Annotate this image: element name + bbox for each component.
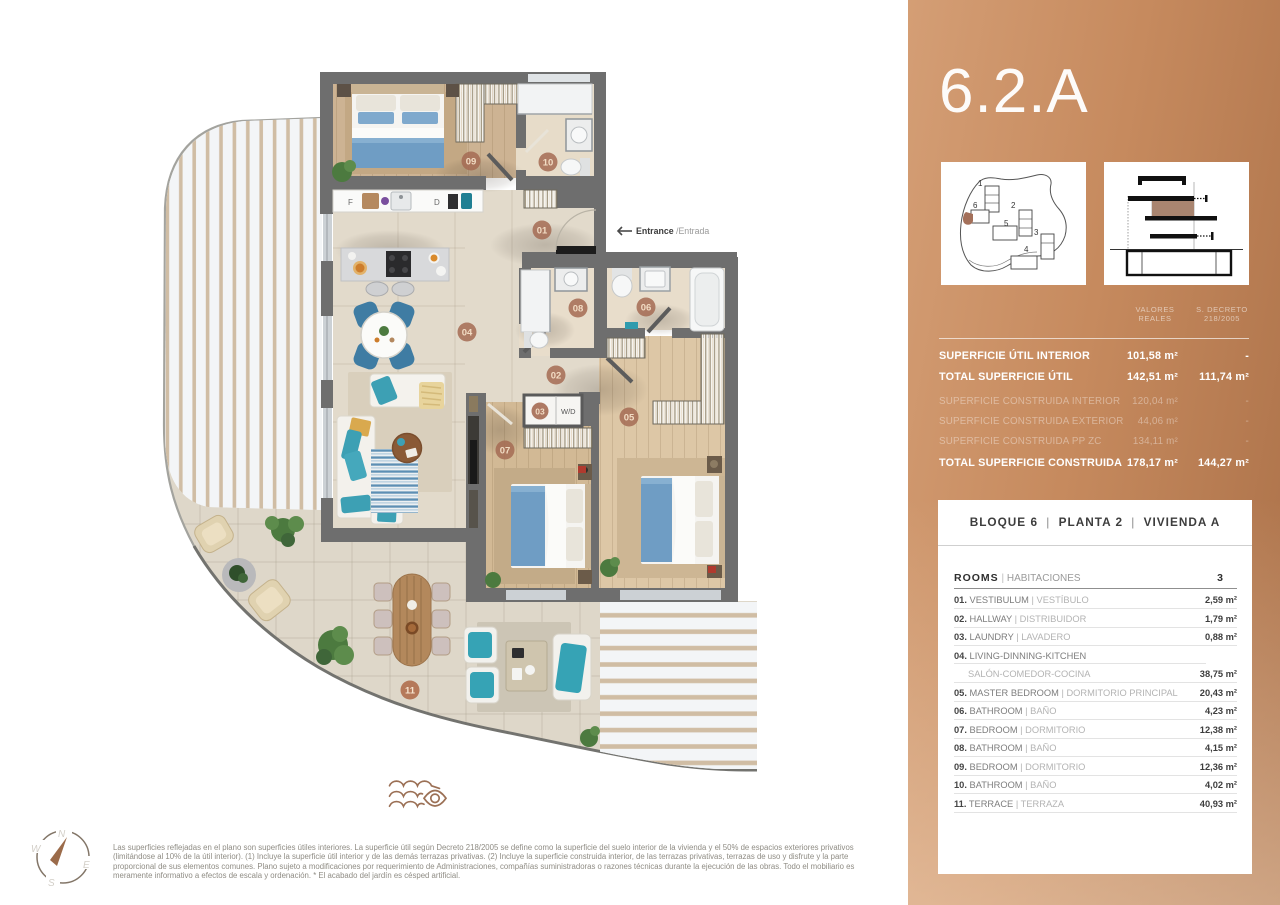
svg-text:08: 08 xyxy=(573,304,584,315)
svg-text:07: 07 xyxy=(500,446,511,457)
svg-text:10: 10 xyxy=(543,158,554,169)
svg-text:02: 02 xyxy=(551,371,562,382)
svg-text:D: D xyxy=(434,198,440,207)
svg-text:5: 5 xyxy=(1004,219,1009,228)
svg-text:W/D: W/D xyxy=(561,407,576,416)
svg-text:/Entrada: /Entrada xyxy=(676,226,709,236)
svg-text:4: 4 xyxy=(1024,245,1029,254)
svg-text:3: 3 xyxy=(1034,228,1039,237)
svg-text:01: 01 xyxy=(537,226,548,237)
svg-text:04: 04 xyxy=(462,328,473,339)
svg-text:6: 6 xyxy=(973,201,978,210)
svg-text:2: 2 xyxy=(1011,201,1016,210)
svg-text:F: F xyxy=(348,198,353,207)
svg-text:E: E xyxy=(83,860,90,871)
svg-text:N: N xyxy=(58,829,66,840)
svg-text:06: 06 xyxy=(641,303,652,314)
svg-text:03: 03 xyxy=(535,407,545,417)
svg-text:05: 05 xyxy=(624,413,635,424)
svg-text:1: 1 xyxy=(978,179,983,188)
svg-text:09: 09 xyxy=(466,157,477,168)
svg-text:Entrance: Entrance xyxy=(636,226,674,236)
svg-text:11: 11 xyxy=(405,686,416,697)
svg-text:W: W xyxy=(31,844,42,855)
svg-text:S: S xyxy=(48,878,55,889)
